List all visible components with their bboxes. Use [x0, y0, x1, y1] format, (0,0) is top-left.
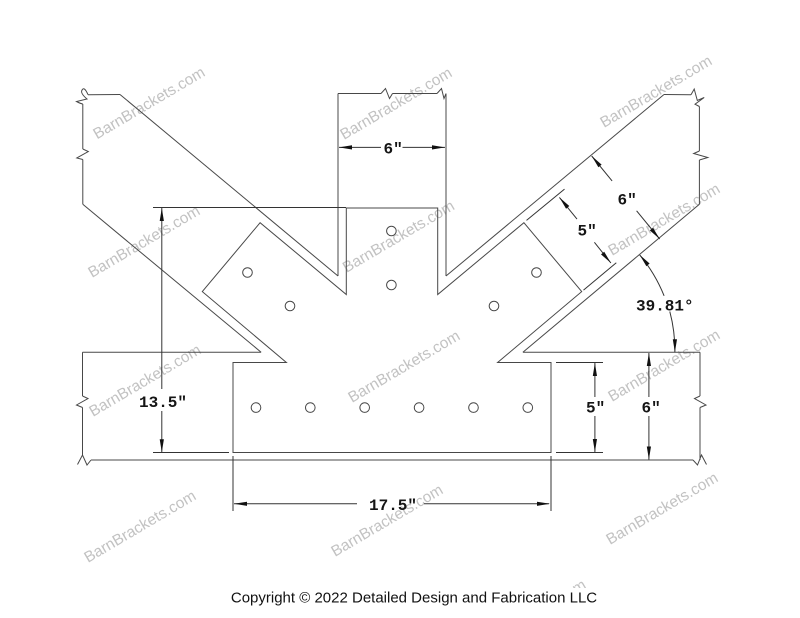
svg-text:39.81°: 39.81°: [636, 298, 694, 316]
svg-text:5": 5": [578, 223, 597, 241]
svg-text:13.5": 13.5": [139, 394, 187, 412]
svg-text:6": 6": [384, 141, 403, 159]
svg-text:17.5": 17.5": [369, 497, 417, 515]
svg-text:6": 6": [618, 192, 637, 210]
svg-text:5": 5": [586, 400, 605, 418]
svg-text:Copyright © 2022 Detailed Desi: Copyright © 2022 Detailed Design and Fab…: [231, 590, 597, 607]
svg-text:6": 6": [642, 400, 661, 418]
